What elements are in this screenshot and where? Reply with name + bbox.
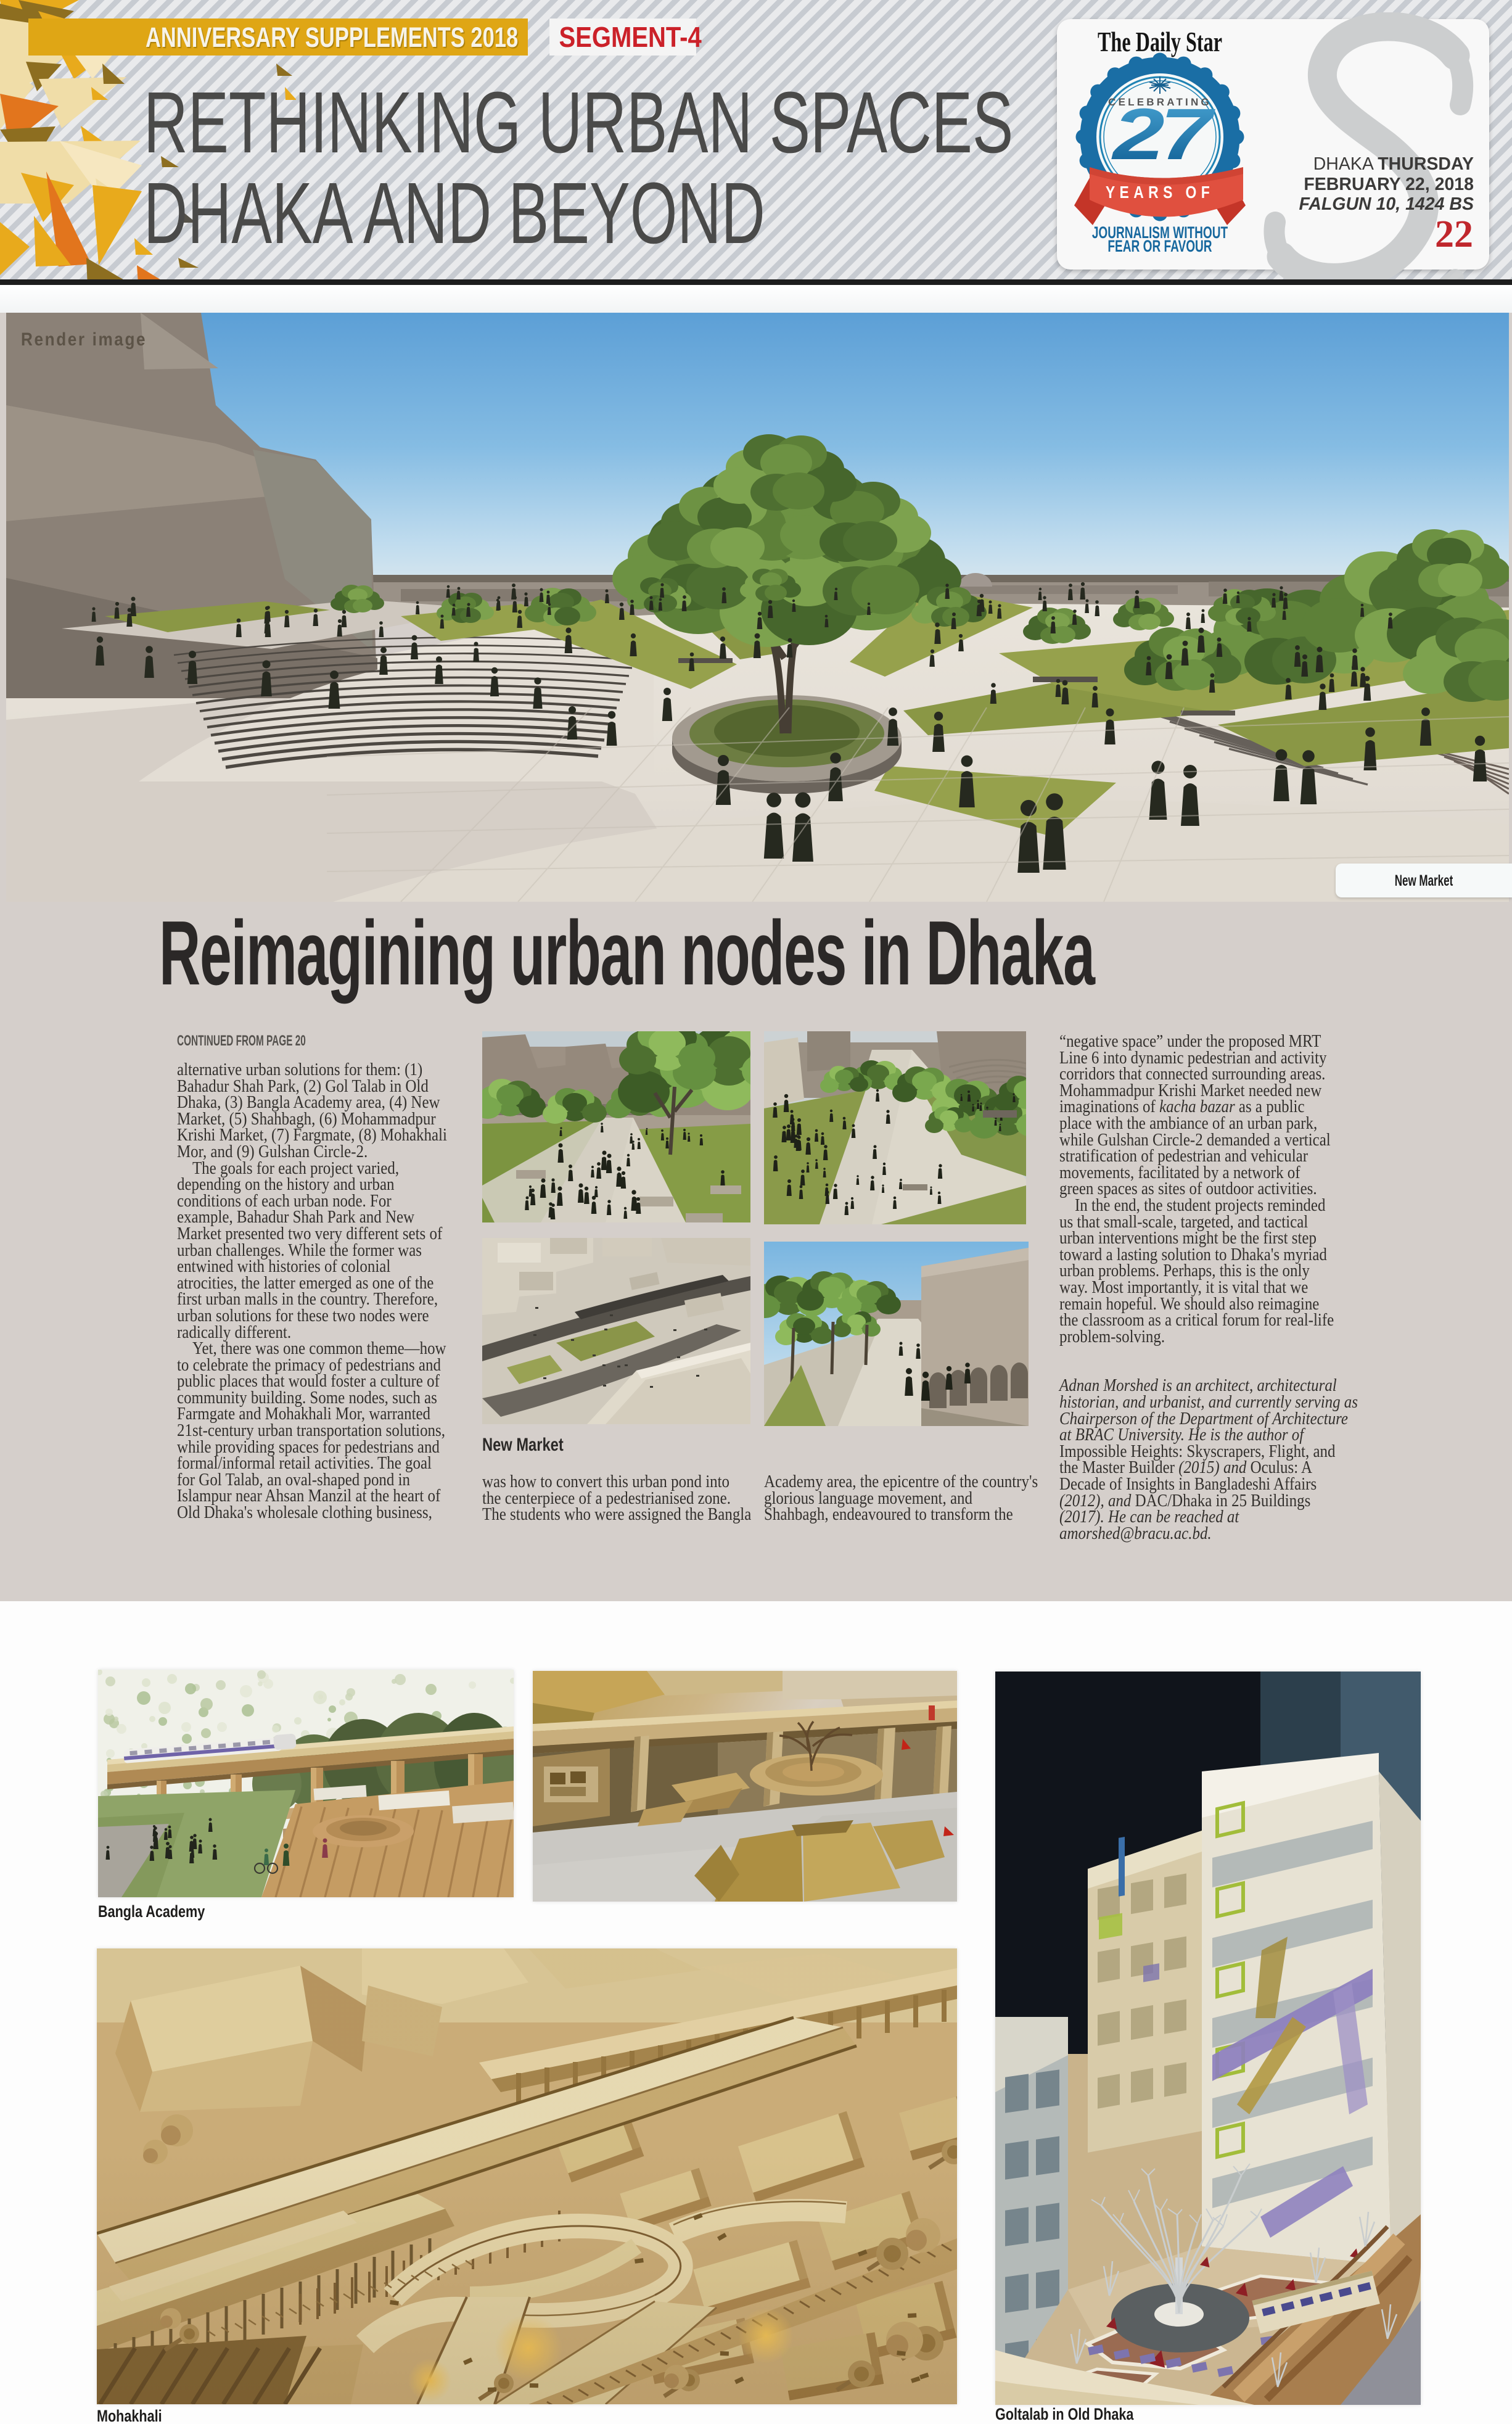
svg-text:FEAR OR FAVOUR: FEAR OR FAVOUR [1107,237,1212,255]
